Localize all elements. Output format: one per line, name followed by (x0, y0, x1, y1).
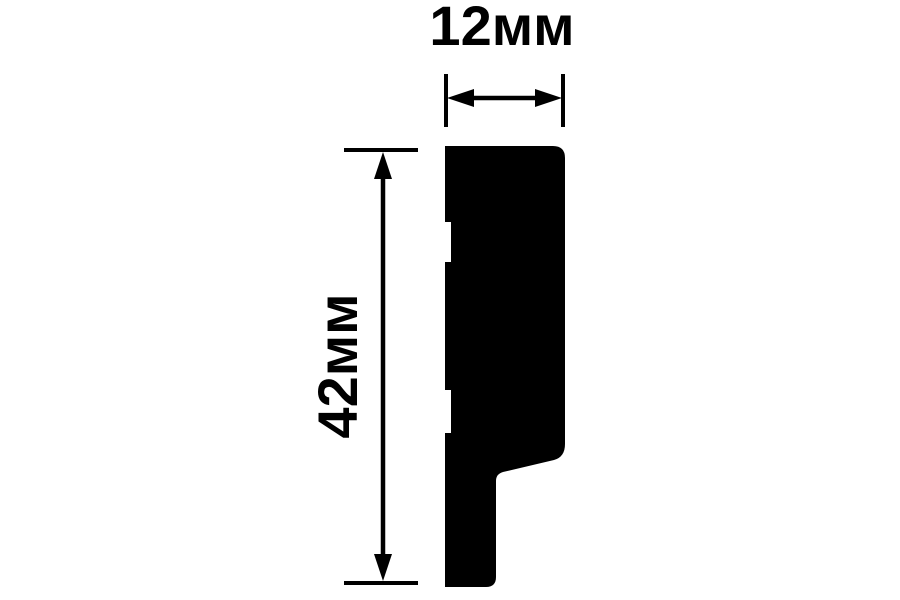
width-arrowhead-right-icon (535, 89, 562, 107)
width-arrowhead-left-icon (447, 89, 474, 107)
width-dimension: 12мм (429, 0, 574, 127)
height-dimension: 42мм (306, 150, 418, 583)
profile-dimension-diagram: 12мм 42мм (0, 0, 900, 600)
height-dimension-label: 42мм (306, 293, 369, 438)
width-dimension-label: 12мм (429, 0, 574, 57)
height-arrowhead-top-icon (374, 152, 392, 179)
molding-profile-shape (445, 146, 565, 587)
height-arrowhead-bottom-icon (374, 554, 392, 581)
drawing-canvas: 12мм 42мм (0, 0, 900, 600)
